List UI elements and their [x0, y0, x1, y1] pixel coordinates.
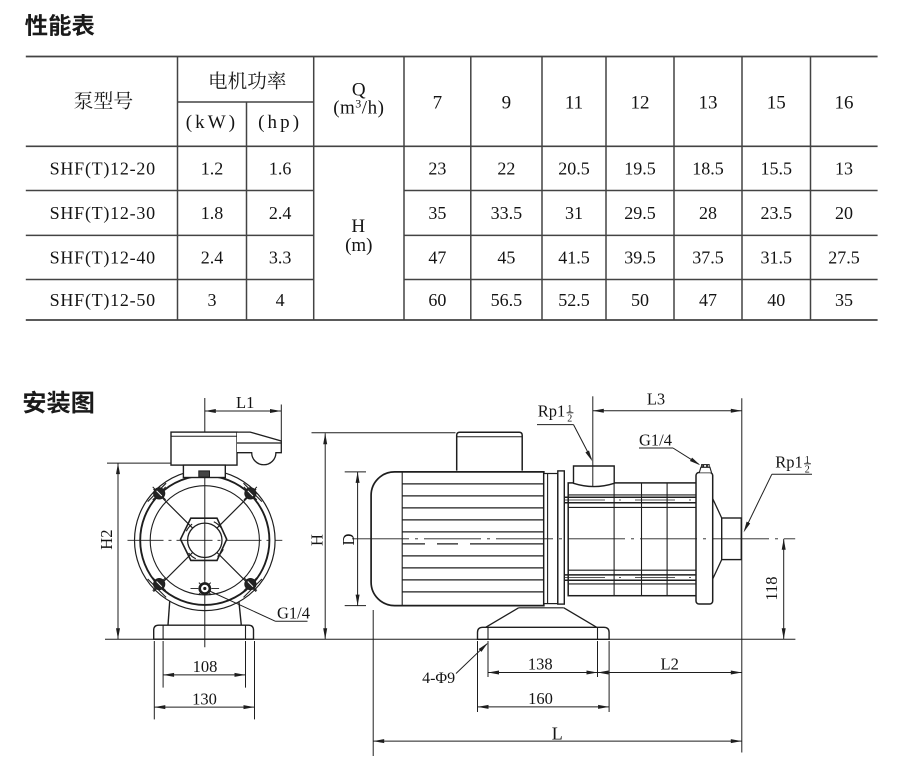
svg-text:G1/4: G1/4: [639, 430, 672, 449]
svg-text:41.5: 41.5: [558, 248, 590, 268]
svg-text:15.5: 15.5: [761, 159, 793, 179]
svg-text:23: 23: [428, 159, 446, 179]
svg-text:29.5: 29.5: [624, 203, 656, 223]
svg-text:108: 108: [193, 657, 218, 676]
svg-text:9: 9: [502, 92, 512, 113]
svg-text:20.5: 20.5: [558, 159, 590, 179]
svg-text:(m): (m): [345, 235, 372, 256]
svg-text:13: 13: [835, 159, 853, 179]
svg-text:50: 50: [631, 290, 649, 310]
svg-text:L: L: [552, 723, 563, 743]
svg-text:D: D: [339, 533, 358, 545]
svg-text:2.4: 2.4: [269, 203, 292, 223]
svg-text:SHF(T)12-30: SHF(T)12-30: [50, 203, 156, 224]
svg-text:(m3/h): (m3/h): [333, 97, 384, 119]
svg-text:3.3: 3.3: [269, 248, 292, 268]
svg-text:52.5: 52.5: [558, 290, 590, 310]
svg-text:56.5: 56.5: [491, 290, 523, 310]
svg-text:130: 130: [192, 690, 217, 709]
svg-text:16: 16: [835, 92, 854, 113]
svg-text:28: 28: [699, 203, 717, 223]
svg-text:H: H: [351, 216, 365, 237]
svg-text:H: H: [307, 534, 326, 546]
svg-text:3: 3: [208, 290, 217, 310]
svg-text:11: 11: [565, 92, 583, 113]
svg-text:(kW): (kW): [186, 112, 239, 133]
svg-text:33.5: 33.5: [491, 203, 523, 223]
svg-text:37.5: 37.5: [692, 248, 724, 268]
svg-text:1.2: 1.2: [201, 159, 224, 179]
svg-text:23.5: 23.5: [761, 203, 793, 223]
svg-text:12: 12: [631, 92, 650, 113]
svg-text:19.5: 19.5: [624, 159, 656, 179]
svg-text:Rp1: Rp1: [538, 402, 566, 421]
svg-text:2: 2: [567, 414, 572, 425]
svg-text:SHF(T)12-50: SHF(T)12-50: [50, 290, 156, 311]
svg-text:2.4: 2.4: [201, 248, 224, 268]
svg-text:118: 118: [762, 576, 781, 600]
svg-text:35: 35: [835, 290, 853, 310]
svg-text:35: 35: [428, 203, 446, 223]
svg-text:L1: L1: [236, 393, 254, 412]
svg-text:138: 138: [528, 654, 553, 673]
svg-text:47: 47: [428, 248, 446, 268]
svg-text:H2: H2: [97, 530, 116, 550]
svg-text:Rp1: Rp1: [775, 453, 803, 472]
svg-text:L3: L3: [647, 390, 665, 409]
svg-text:(hp): (hp): [258, 112, 302, 133]
svg-text:160: 160: [528, 689, 553, 708]
svg-text:22: 22: [497, 159, 515, 179]
svg-text:L2: L2: [661, 654, 679, 673]
svg-text:13: 13: [699, 92, 718, 113]
svg-text:27.5: 27.5: [828, 248, 860, 268]
svg-text:1.8: 1.8: [201, 203, 224, 223]
svg-text:39.5: 39.5: [624, 248, 656, 268]
svg-text:45: 45: [497, 248, 515, 268]
svg-text:SHF(T)12-20: SHF(T)12-20: [50, 159, 156, 180]
svg-text:4-Φ9: 4-Φ9: [422, 670, 455, 687]
svg-text:20: 20: [835, 203, 853, 223]
svg-text:15: 15: [767, 92, 786, 113]
svg-text:60: 60: [428, 290, 446, 310]
svg-text:SHF(T)12-40: SHF(T)12-40: [50, 248, 156, 269]
svg-text:47: 47: [699, 290, 717, 310]
svg-text:18.5: 18.5: [692, 159, 724, 179]
svg-text:1.6: 1.6: [269, 159, 292, 179]
svg-text:40: 40: [767, 290, 785, 310]
svg-text:7: 7: [433, 92, 443, 113]
svg-text:31: 31: [565, 203, 583, 223]
svg-text:31.5: 31.5: [761, 248, 793, 268]
svg-text:G1/4: G1/4: [277, 604, 310, 623]
svg-text:4: 4: [276, 290, 285, 310]
